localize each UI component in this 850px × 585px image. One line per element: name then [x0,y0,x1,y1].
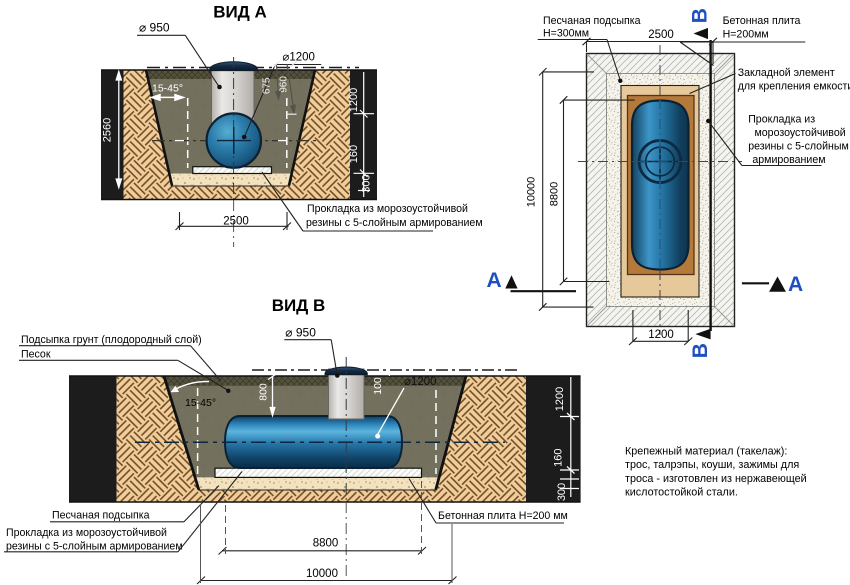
svg-text:для крепления емкости: для крепления емкости [738,81,850,93]
svg-text:А: А [487,269,502,292]
svg-text:10000: 10000 [306,568,338,580]
svg-text:резины с 5-слойным: резины с 5-слойным [748,141,849,153]
svg-text:8800: 8800 [313,538,339,550]
svg-text:Крепежный материал (такелаж):: Крепежный материал (такелаж): [625,446,787,458]
svg-text:160: 160 [348,145,360,163]
svg-text:Закладной элемент: Закладной элемент [738,67,835,79]
svg-text:2560: 2560 [102,118,114,142]
svg-text:Песчаная подсыпка: Песчаная подсыпка [543,15,641,27]
svg-text:1200: 1200 [648,329,674,341]
svg-text:⌀ 950: ⌀ 950 [285,326,316,340]
svg-text:⌀1200: ⌀1200 [404,376,437,388]
svg-text:1200: 1200 [554,387,566,411]
svg-text:1200: 1200 [348,88,360,112]
svg-text:Подсыпка грунт (плодородный сл: Подсыпка грунт (плодородный слой) [21,334,202,346]
svg-text:160: 160 [553,449,565,467]
svg-text:резины с 5-слойным армирование: резины с 5-слойным армированием [306,217,483,229]
svg-text:ВИД А: ВИД А [213,3,267,22]
svg-text:ВИД В: ВИД В [272,296,326,315]
svg-text:⌀ 950: ⌀ 950 [139,21,170,35]
svg-text:резины с 5-слойным армирование: резины с 5-слойным армированием [6,541,183,553]
svg-text:15-45°: 15-45° [185,397,216,409]
svg-text:армированием: армированием [752,154,825,166]
svg-text:Бетонная плита: Бетонная плита [723,15,801,27]
svg-text:8800: 8800 [549,182,561,206]
svg-text:100: 100 [372,377,384,395]
svg-text:300: 300 [556,483,568,501]
svg-text:Н=200мм: Н=200мм [723,29,769,41]
svg-text:Песчаная подсыпка: Песчаная подсыпка [52,510,150,522]
svg-text:А: А [788,273,803,296]
svg-text:Бетонная плита Н=200 мм: Бетонная плита Н=200 мм [438,510,568,522]
svg-text:кислотостойкой стали.: кислотостойкой стали. [625,487,738,499]
svg-text:15-45°: 15-45° [152,83,183,95]
svg-text:2500: 2500 [648,29,674,41]
svg-text:Песок: Песок [21,349,51,361]
svg-text:Н=300мм: Н=300мм [543,28,589,40]
svg-text:2500: 2500 [223,216,249,228]
svg-text:Прокладка из: Прокладка из [748,114,815,126]
svg-text:10000: 10000 [526,177,538,208]
svg-text:Прокладка из морозоустойчивой: Прокладка из морозоустойчивой [307,203,468,215]
svg-text:трос, талрэпы, коуши, зажимы д: трос, талрэпы, коуши, зажимы для [625,459,799,471]
svg-text:⌀1200: ⌀1200 [282,52,315,64]
svg-text:675: 675 [262,77,273,94]
svg-text:В: В [689,8,712,23]
svg-text:960: 960 [279,76,290,93]
svg-text:В: В [689,343,712,358]
svg-text:морозоустойчивой: морозоустойчивой [755,127,846,139]
svg-text:троса - изготовлен из нержавею: троса - изготовлен из нержавеющей [625,473,807,485]
svg-text:Прокладка из морозоустойчивой: Прокладка из морозоустойчивой [6,527,167,539]
svg-text:800: 800 [258,383,270,401]
